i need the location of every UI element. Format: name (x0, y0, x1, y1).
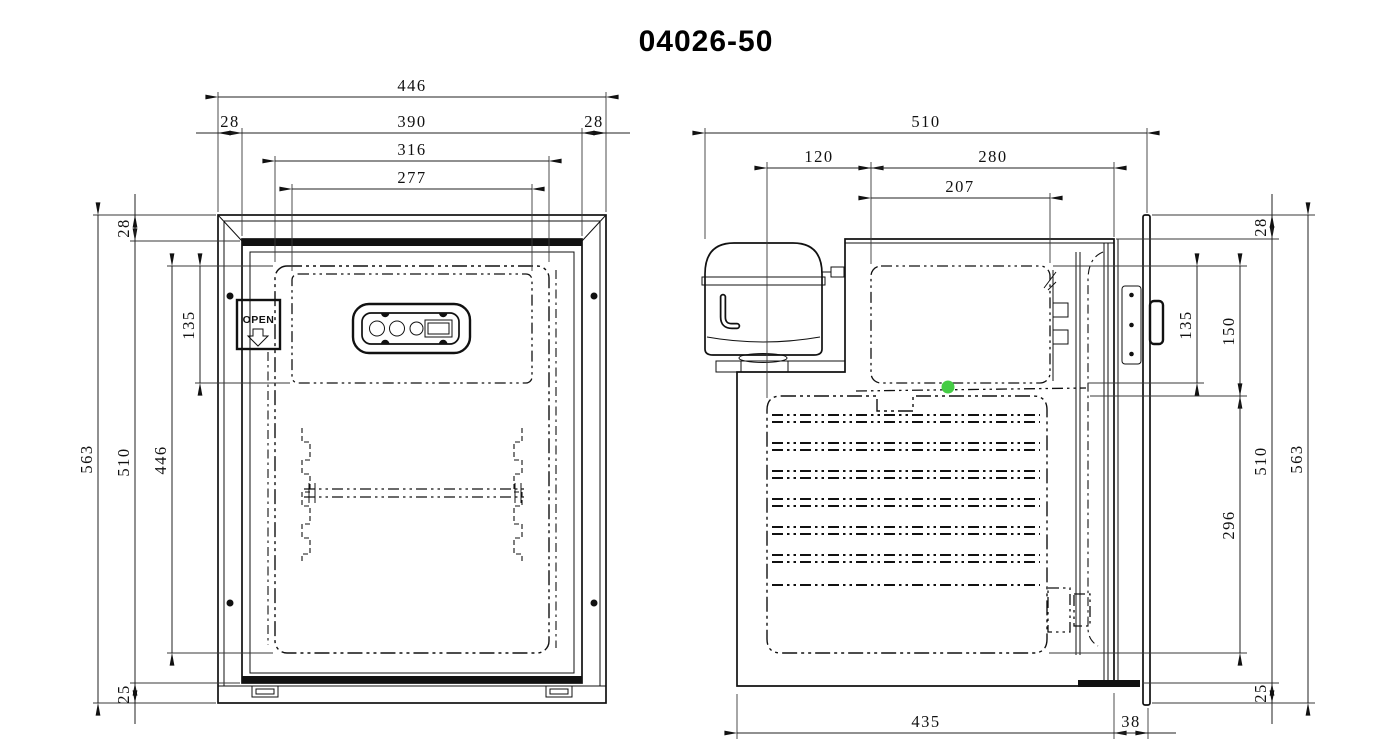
screw-dot (591, 600, 598, 607)
dim-front-liner-width: 316 (397, 140, 426, 159)
pipe-fitting (831, 267, 844, 277)
dim-side-overall-depth: 510 (911, 112, 940, 131)
dim-front-freezer-width: 277 (397, 168, 426, 187)
side-dimensions: 510 120 280 207 135 150 296 28 510 25 56… (705, 112, 1315, 739)
drawing-sheet: 04026-50 (0, 0, 1400, 750)
front-view: OPEN (77, 76, 630, 724)
dim-side-bottom-inset: 25 (1251, 683, 1270, 703)
front-foot-right (546, 686, 572, 697)
front-freezer-compartment (292, 274, 532, 383)
front-dimensions: 446 28 390 28 316 277 563 510 446 135 28… (77, 76, 630, 724)
dim-side-freezer-drop: 150 (1219, 316, 1238, 345)
dim-side-coil-span: 296 (1219, 510, 1238, 539)
screw-dot (227, 600, 234, 607)
dim-front-overall-width: 446 (397, 76, 426, 95)
handle-bracket (1150, 301, 1163, 344)
screw-dot (227, 293, 234, 300)
shelf-band (304, 483, 526, 503)
open-arrow-icon (248, 329, 268, 346)
compressor-base (716, 361, 845, 372)
side-cabinet (737, 239, 1114, 686)
technical-drawing: 04026-50 (0, 0, 1400, 750)
highlight-dot (942, 381, 955, 394)
dim-front-top-inset: 28 (114, 218, 133, 238)
evaporator-bracket (1053, 303, 1068, 317)
evaporator-bracket (1053, 330, 1068, 344)
door-flange (1143, 215, 1150, 705)
dim-side-door-thickness: 38 (1121, 712, 1141, 731)
front-frame (218, 215, 606, 703)
dim-side-door-height: 510 (1251, 446, 1270, 475)
dim-side-freezer-height: 135 (1176, 310, 1195, 339)
drain-detail (1048, 588, 1070, 632)
dim-front-frame-left: 28 (220, 112, 240, 131)
control-knob (390, 321, 405, 336)
freezer-bottom-line (856, 388, 1086, 391)
compressor (702, 243, 845, 372)
front-door (227, 239, 598, 683)
dim-front-overall-height: 563 (77, 444, 96, 473)
dim-front-door-height: 510 (114, 447, 133, 476)
dim-front-bottom-inset: 25 (114, 684, 133, 704)
dim-side-freezer-depth: 207 (945, 177, 974, 196)
side-door (1076, 215, 1163, 705)
dim-front-door-width: 390 (397, 112, 426, 131)
side-freezer-compartment (856, 266, 1086, 394)
open-button: OPEN (237, 300, 280, 349)
dim-side-top-inset: 28 (1251, 217, 1270, 237)
condenser-coils (772, 415, 1040, 585)
dim-front-frame-right: 28 (584, 112, 604, 131)
page-title: 04026-50 (639, 25, 774, 58)
dim-side-compressor-offset: 120 (804, 147, 833, 166)
control-knob (410, 322, 423, 335)
screw-dot (591, 293, 598, 300)
dim-side-overall-height: 563 (1287, 444, 1306, 473)
control-knob (370, 321, 385, 336)
side-view: 510 120 280 207 135 150 296 28 510 25 56… (702, 112, 1315, 739)
open-button-label: OPEN (243, 314, 275, 326)
dim-side-base-depth: 435 (911, 712, 940, 731)
dim-front-freezer-height: 135 (179, 310, 198, 339)
side-liner-dashed (767, 396, 1090, 653)
compressor-band (702, 277, 825, 285)
dim-side-body-depth: 280 (978, 147, 1007, 166)
control-panel (353, 304, 470, 353)
dim-front-liner-height: 446 (151, 445, 170, 474)
front-foot-left (252, 686, 278, 697)
door-gasket-line (1088, 252, 1103, 646)
